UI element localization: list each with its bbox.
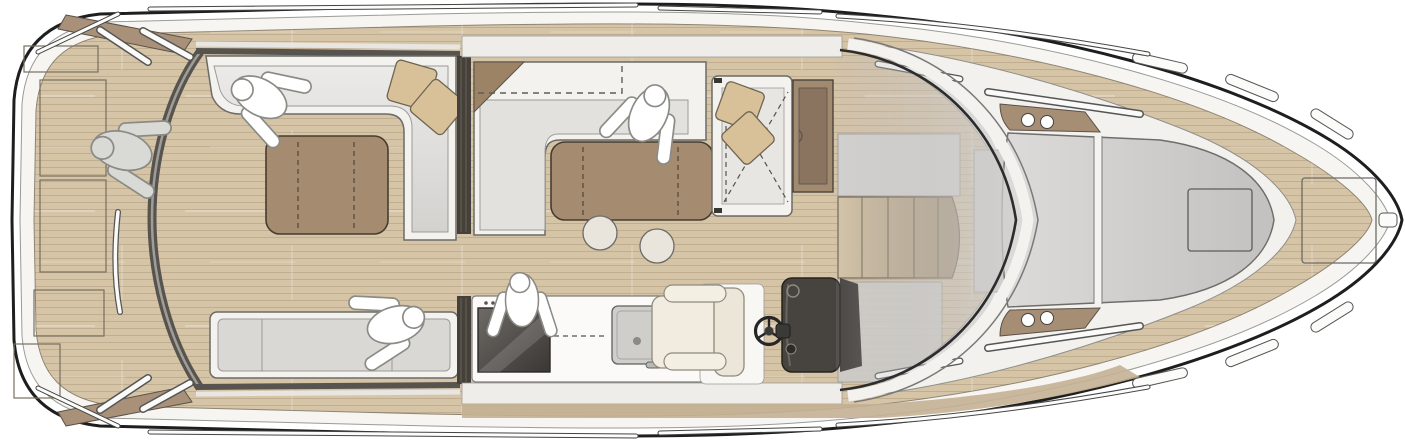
porthole-dot: [1041, 312, 1054, 325]
console-button: [786, 344, 796, 354]
stool: [640, 229, 674, 263]
stool: [583, 216, 617, 250]
salon-table: [551, 142, 713, 220]
sideboard-cabinet: [793, 80, 833, 192]
sink-drain: [633, 337, 641, 345]
helm-armrest: [664, 285, 726, 302]
cockpit-table: [266, 136, 388, 234]
cabin-side-band-bottom: [462, 383, 842, 404]
yacht-floor-plan: [0, 0, 1405, 441]
porthole-dot: [1022, 314, 1035, 327]
porthole-dot: [1041, 116, 1054, 129]
porthole-dot: [1022, 114, 1035, 127]
cabin-side-band-top: [462, 36, 842, 57]
yacht-deck-plan-svg: [0, 0, 1405, 441]
helm-armrest: [664, 353, 726, 370]
copilot-seat: [712, 76, 792, 216]
sliding-door-track: [457, 56, 471, 384]
helm-console: [782, 278, 840, 372]
